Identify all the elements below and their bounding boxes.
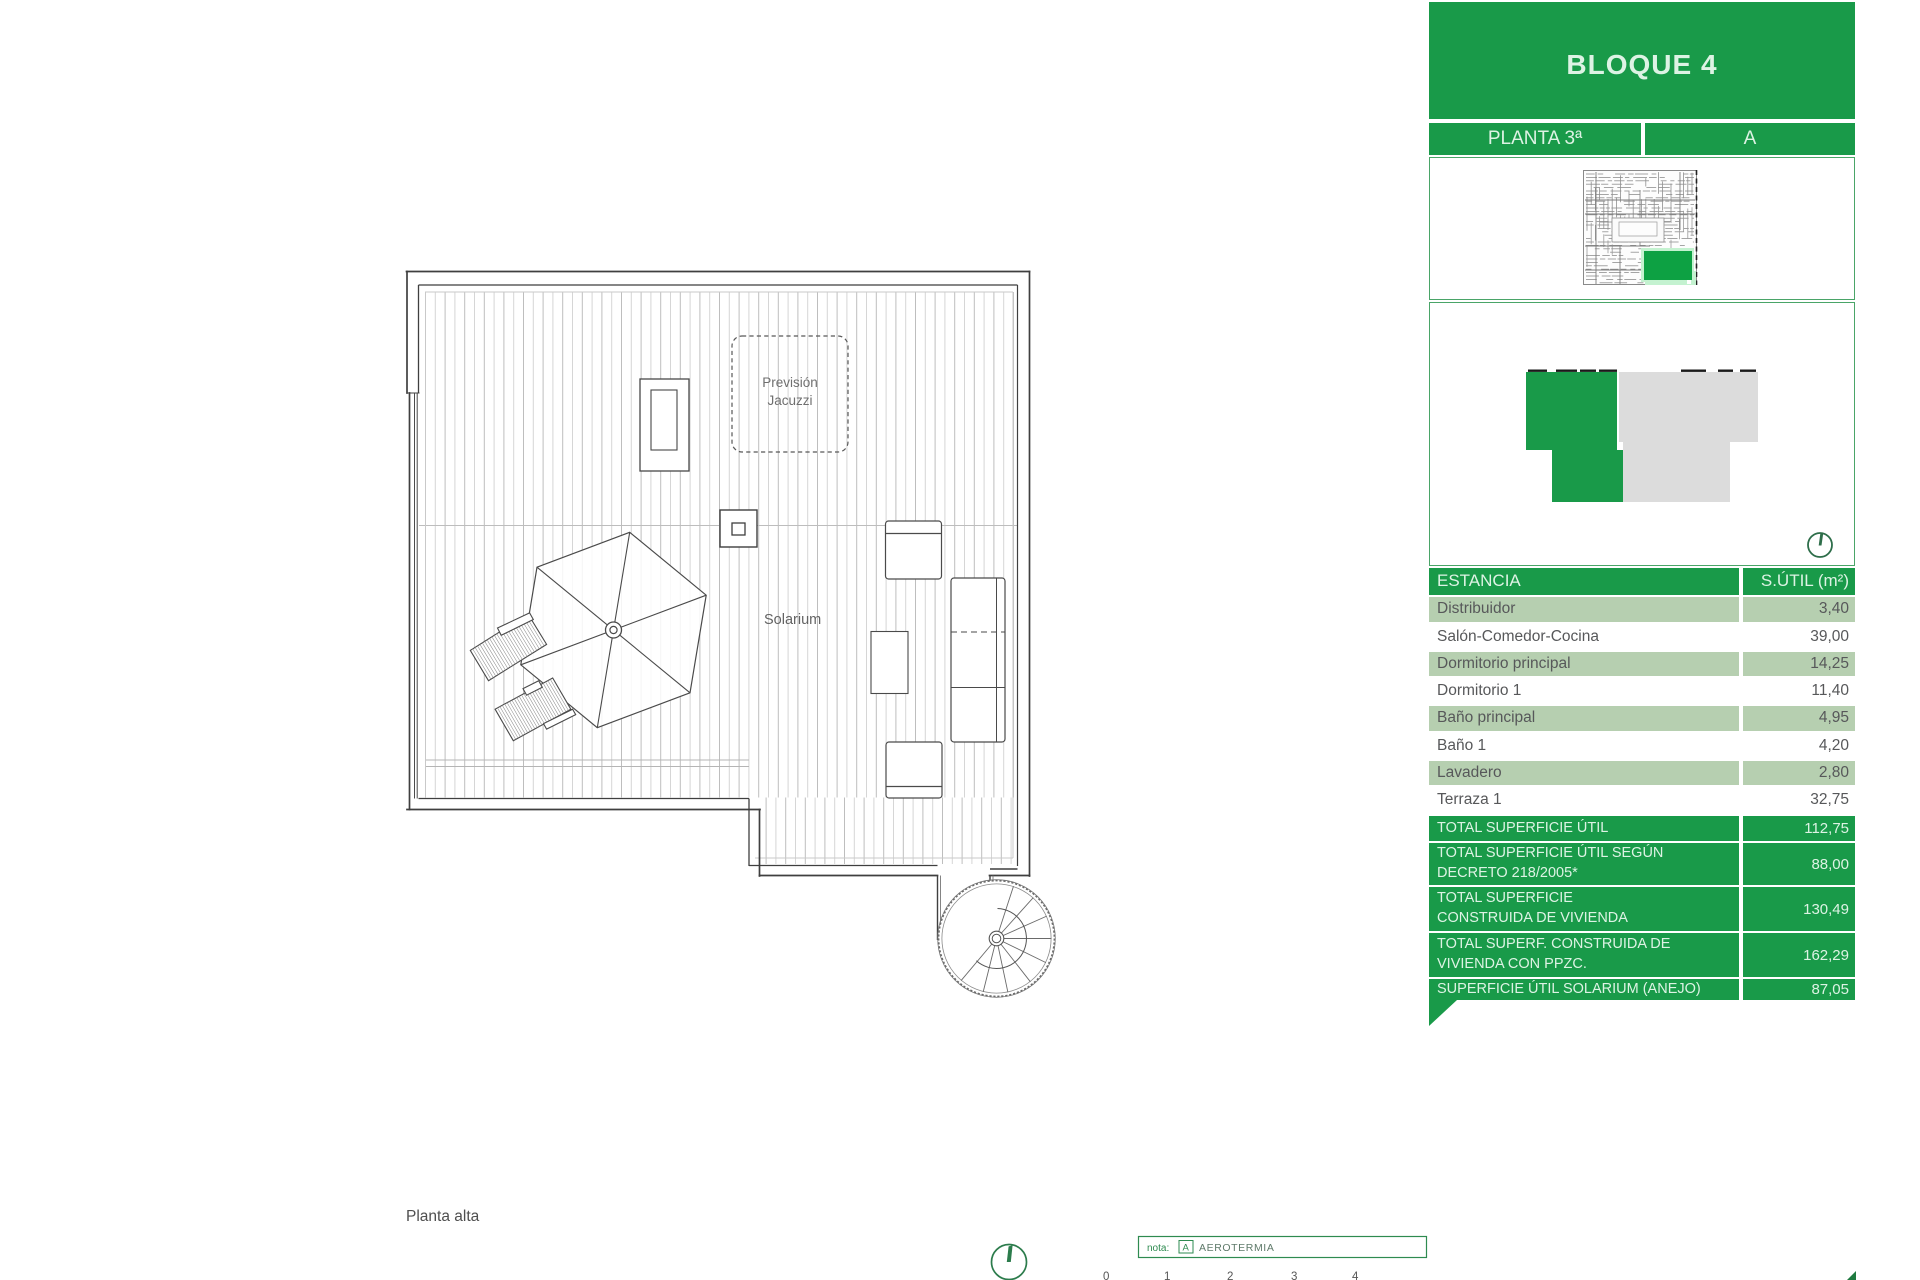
svg-text:1: 1	[1164, 1271, 1170, 1280]
svg-text:2: 2	[1227, 1271, 1233, 1280]
svg-text:Planta alta: Planta alta	[406, 1208, 480, 1225]
svg-text:AEROTERMIA: AEROTERMIA	[1199, 1242, 1274, 1254]
svg-text:Previsión: Previsión	[762, 375, 818, 390]
svg-text:A: A	[1183, 1243, 1190, 1254]
svg-text:3: 3	[1291, 1271, 1297, 1280]
svg-text:Jacuzzi: Jacuzzi	[767, 393, 812, 408]
svg-text:nota:: nota:	[1147, 1243, 1169, 1254]
svg-text:4: 4	[1352, 1271, 1359, 1280]
svg-text:0: 0	[1103, 1271, 1109, 1280]
svg-text:Solarium: Solarium	[764, 612, 821, 628]
